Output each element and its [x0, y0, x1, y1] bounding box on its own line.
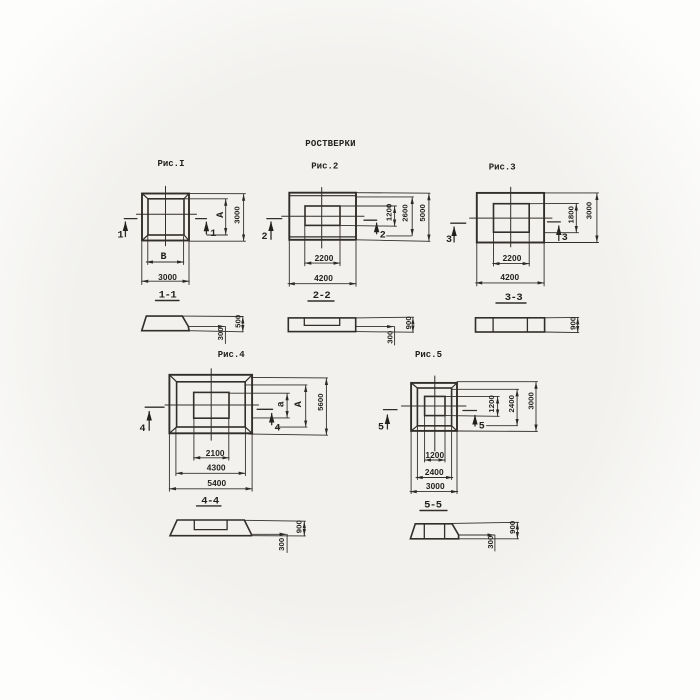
svg-text:300: 300: [277, 538, 286, 551]
svg-text:Рис.4: Рис.4: [218, 350, 246, 360]
svg-text:3: 3: [446, 235, 452, 246]
svg-text:4200: 4200: [500, 272, 519, 282]
svg-text:1200: 1200: [487, 395, 496, 413]
svg-text:2100: 2100: [206, 448, 225, 458]
svg-text:5: 5: [378, 423, 384, 434]
svg-text:B: B: [160, 252, 166, 263]
svg-text:Рис.3: Рис.3: [489, 162, 516, 172]
svg-text:3-3: 3-3: [505, 292, 523, 304]
svg-text:3000: 3000: [527, 392, 536, 410]
svg-text:РОСТВЕРКИ: РОСТВЕРКИ: [305, 139, 355, 149]
svg-text:3000: 3000: [158, 272, 177, 282]
svg-text:300: 300: [386, 331, 395, 344]
svg-text:2400: 2400: [507, 395, 516, 413]
svg-text:3000: 3000: [426, 481, 445, 491]
svg-text:1800: 1800: [566, 206, 575, 224]
svg-text:2200: 2200: [503, 253, 522, 263]
svg-text:2600: 2600: [401, 204, 410, 222]
svg-text:2200: 2200: [315, 253, 334, 263]
svg-text:1200: 1200: [384, 204, 393, 222]
svg-text:1: 1: [210, 229, 216, 240]
svg-text:5: 5: [479, 421, 485, 432]
svg-text:5-5: 5-5: [424, 499, 442, 511]
svg-text:4: 4: [275, 424, 281, 435]
svg-text:3000: 3000: [232, 206, 241, 224]
svg-text:5400: 5400: [207, 478, 226, 488]
svg-text:4300: 4300: [207, 462, 226, 472]
svg-text:500: 500: [233, 315, 242, 328]
svg-text:Рис.5: Рис.5: [415, 350, 442, 360]
svg-text:A: A: [216, 212, 227, 218]
svg-text:900: 900: [569, 317, 578, 330]
svg-text:4200: 4200: [314, 273, 333, 283]
svg-text:900: 900: [404, 316, 413, 329]
svg-text:Рис.I: Рис.I: [157, 159, 184, 169]
svg-text:1200: 1200: [425, 450, 444, 460]
svg-text:5600: 5600: [316, 393, 325, 411]
svg-text:1-1: 1-1: [159, 290, 177, 302]
svg-text:2-2: 2-2: [313, 290, 331, 302]
svg-text:2: 2: [380, 230, 386, 241]
svg-text:900: 900: [508, 521, 517, 534]
svg-text:A: A: [294, 401, 305, 407]
svg-text:2400: 2400: [425, 467, 444, 477]
svg-text:2: 2: [262, 232, 268, 243]
svg-text:300: 300: [486, 536, 495, 549]
svg-text:300: 300: [216, 327, 225, 340]
svg-text:3000: 3000: [584, 202, 593, 220]
svg-text:5000: 5000: [418, 204, 427, 222]
svg-text:a: a: [277, 401, 288, 407]
svg-text:Рис.2: Рис.2: [311, 162, 338, 172]
svg-text:4: 4: [140, 424, 146, 435]
svg-text:1: 1: [118, 230, 124, 241]
svg-text:900: 900: [295, 520, 304, 533]
